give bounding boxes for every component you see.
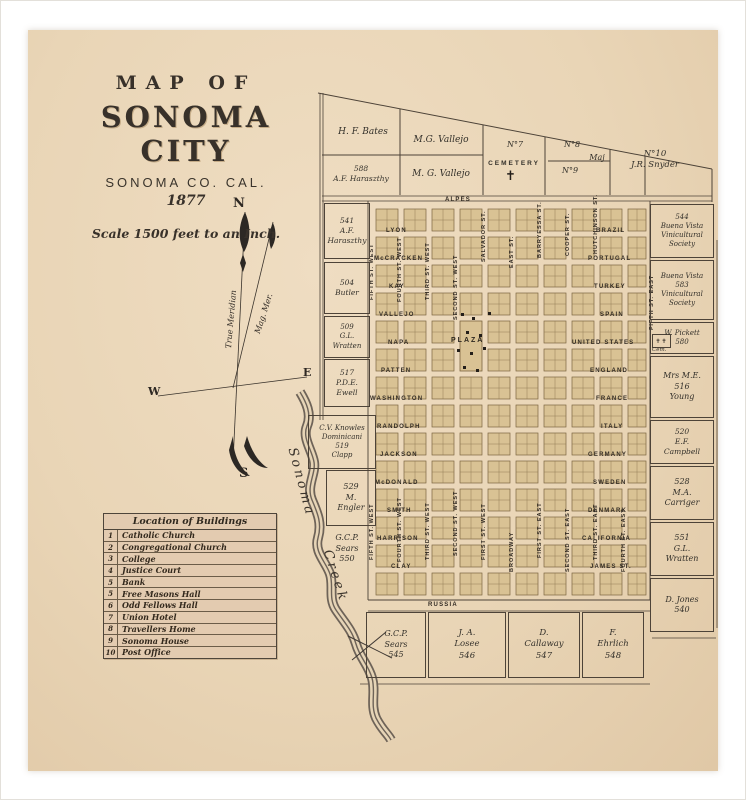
parcel-line: Society bbox=[669, 240, 695, 249]
parcel-line: G.C.P. bbox=[335, 533, 358, 543]
parcel-line: D. Jones bbox=[665, 595, 698, 605]
street-label-h: TURKEY bbox=[594, 284, 626, 290]
parcel-line: M.A. bbox=[672, 488, 691, 498]
parcel-label: N°8 bbox=[552, 138, 592, 152]
parcel-line: 529 bbox=[343, 482, 358, 492]
street-label-v: SECOND ST. WEST bbox=[453, 255, 459, 320]
street-label-v: EAST ST. bbox=[509, 236, 515, 268]
legend-row: 6Odd Fellows Hall bbox=[104, 600, 276, 612]
parcel-line: H. F. Bates bbox=[338, 127, 388, 139]
year: 1877 bbox=[60, 193, 312, 209]
parcel-label: H. F. Bates bbox=[330, 118, 396, 148]
parcel-line: J.R. Snyder bbox=[631, 160, 679, 171]
street-label-v: SECOND ST. EAST bbox=[565, 508, 571, 572]
parcel-line: 528 bbox=[674, 477, 689, 487]
compass-north-label: N bbox=[233, 196, 245, 211]
parcel-label: N°10J.R. Snyder bbox=[612, 144, 698, 176]
legend-row-name: Union Hotel bbox=[118, 612, 177, 622]
parcel-line: 550 bbox=[339, 554, 354, 564]
parcel-line: Wratten bbox=[333, 342, 362, 351]
street-label-h: ITALY bbox=[601, 424, 623, 430]
cemetery-cross-icon: ✝ bbox=[505, 168, 516, 184]
parcel-label: J. A.Losee546 bbox=[428, 612, 506, 678]
parcel-line: N°10 bbox=[644, 149, 667, 160]
parcel-label: M.G. Vallejo bbox=[402, 126, 480, 156]
building-marker bbox=[483, 347, 486, 350]
legend-row-number: 5 bbox=[104, 577, 118, 588]
street-label-v: THIRD ST. WEST bbox=[425, 242, 431, 300]
street-label-h: ENGLAND bbox=[590, 368, 628, 374]
legend-rows: 1Catholic Church2Congregational Church3C… bbox=[104, 530, 276, 658]
parcel-line: 516 bbox=[674, 382, 689, 392]
parcel-label: 528M.A.Carriger bbox=[650, 466, 714, 520]
parcel-line: 588 bbox=[354, 164, 368, 174]
parcel-line: Clapp bbox=[332, 451, 353, 460]
parcel-line: Buena Vista bbox=[661, 272, 703, 281]
parcel-line: P.D.E. bbox=[336, 378, 358, 388]
parcel-line: 546 bbox=[459, 651, 475, 662]
legend-row-name: Free Masons Hall bbox=[118, 589, 201, 599]
building-marker bbox=[457, 349, 460, 352]
parcel-label: 541A.F.Haraszthy bbox=[324, 203, 370, 259]
street-label-h: VALLEJO bbox=[379, 312, 415, 318]
parcel-line: Sears bbox=[336, 544, 359, 554]
parcel-label: N°9 bbox=[550, 164, 590, 178]
parcel-label: 504Butler bbox=[324, 262, 370, 314]
legend-row-name: Catholic Church bbox=[118, 530, 195, 540]
parcel-line: M. G. Vallejo bbox=[412, 169, 470, 181]
parcel-line: Mrs M.E. bbox=[663, 371, 701, 381]
street-label-h: UNITED STATES bbox=[572, 340, 634, 346]
street-label-h: WASHINGTON bbox=[370, 396, 423, 402]
labels-layer: MAP OF SONOMA CITY SONOMA CO. CAL. 1877 … bbox=[0, 0, 746, 800]
parcel-label: G.C.P.Sears545 bbox=[366, 612, 426, 678]
street-label-v: COOPER ST. bbox=[565, 213, 571, 256]
parcel-line: Society bbox=[669, 299, 695, 308]
parcel-label: 517P.D.E.Ewell bbox=[324, 359, 370, 407]
parcel-label: C.V. KnowlesDominicani519Clapp bbox=[308, 415, 376, 469]
parcel-label: D.Callaway547 bbox=[508, 612, 580, 678]
parcel-line: C.V. Knowles bbox=[319, 424, 365, 433]
parcel-line: M.G. Vallejo bbox=[414, 135, 469, 147]
map-of-heading: MAP OF bbox=[60, 72, 312, 94]
legend-row: 2Congregational Church bbox=[104, 542, 276, 554]
parcel-line: Vinicultural bbox=[661, 290, 703, 299]
parcel-line: Ehrlich bbox=[597, 639, 628, 650]
parcel-label: 520E.F.Campbell bbox=[650, 420, 714, 464]
legend-row-number: 5 bbox=[104, 588, 118, 599]
parcel-line: A.F. Haraszthy bbox=[333, 174, 389, 184]
street-label-v: SECOND ST. WEST bbox=[453, 491, 459, 556]
street-label-v: BARRYESSA ST. bbox=[537, 201, 543, 258]
legend-row-name: Bank bbox=[118, 577, 145, 587]
legend-row-name: College bbox=[118, 554, 156, 564]
parcel-line: D. bbox=[539, 628, 548, 639]
building-marker bbox=[461, 313, 464, 316]
building-marker bbox=[476, 369, 479, 372]
street-label-v: THIRD ST. EAST bbox=[593, 504, 599, 560]
parcel-line: E.F. bbox=[675, 437, 689, 447]
county-subtitle: SONOMA CO. CAL. bbox=[60, 175, 312, 190]
legend-title: Location of Buildings bbox=[104, 514, 276, 530]
parcel-line: Vinicultural bbox=[661, 231, 703, 240]
parcel-line: 548 bbox=[605, 651, 621, 662]
parcel-line: Engler bbox=[337, 503, 364, 513]
building-marker bbox=[472, 317, 475, 320]
parcel-line: M. bbox=[346, 493, 357, 503]
parcel-line: Campbell bbox=[664, 447, 700, 457]
street-label-v: FOURTH ST. WEST bbox=[397, 497, 403, 562]
parcel-line: Buena Vista bbox=[661, 222, 703, 231]
legend-row: 10Post Office bbox=[104, 647, 276, 658]
parcel-line: 509 bbox=[340, 323, 353, 332]
parcel-label: M. G. Vallejo bbox=[402, 158, 480, 192]
parcel-line: Wratten bbox=[666, 554, 699, 564]
parcel-label: 588A.F. Haraszthy bbox=[324, 155, 398, 193]
parcel-label: D. Jones540 bbox=[650, 578, 714, 632]
street-label-h: SPAIN bbox=[600, 312, 624, 318]
legend-row: 5Free Masons Hall bbox=[104, 588, 276, 600]
parcel-label: 509G.L.Wratten bbox=[324, 316, 370, 358]
street-label-h: GERMANY bbox=[588, 452, 627, 458]
parcel-line: 580 bbox=[675, 338, 688, 347]
parcel-line: Callaway bbox=[524, 639, 563, 650]
parcel-line: 544 bbox=[675, 213, 688, 222]
legend-row-number: 10 bbox=[104, 647, 118, 658]
parcel-line: Losee bbox=[454, 639, 479, 650]
legend: Location of Buildings 1Catholic Church2C… bbox=[103, 513, 277, 659]
parcel-label: Buena Vista583ViniculturalSociety bbox=[650, 260, 714, 320]
street-label-h: PATTEN bbox=[381, 368, 411, 374]
parcel-line: 520 bbox=[675, 427, 689, 437]
parcel-label: W. Pickett580 bbox=[650, 322, 714, 354]
magnetic-meridian-label: Mag. Mer. bbox=[253, 292, 274, 334]
parcel-line: G.L. bbox=[674, 544, 691, 554]
parcel-line: 517 bbox=[340, 368, 354, 378]
legend-row: 3College bbox=[104, 553, 276, 565]
parcel-line: Butler bbox=[335, 288, 359, 298]
parcel-label: Maj bbox=[585, 152, 609, 164]
parcel-label: G.C.P.Sears550 bbox=[324, 528, 370, 570]
parcel-line: J. A. bbox=[459, 628, 476, 639]
legend-row-number: 1 bbox=[104, 530, 118, 541]
parcel-line: N°9 bbox=[562, 166, 578, 176]
compass-east-label: E bbox=[303, 366, 311, 379]
parcel-line: 547 bbox=[536, 651, 552, 662]
street-label-h: CLAY bbox=[391, 564, 412, 570]
parcel-line: Sears bbox=[385, 640, 408, 650]
legend-row-number: 4 bbox=[104, 565, 118, 576]
building-marker bbox=[488, 312, 491, 315]
parcel-label: 551G.L.Wratten bbox=[650, 522, 714, 576]
legend-row-number: 8 bbox=[104, 624, 118, 635]
building-marker bbox=[463, 366, 466, 369]
street-label-h: RUSSIA bbox=[428, 602, 458, 608]
legend-row-number: 3 bbox=[104, 553, 118, 564]
parcel-line: F. bbox=[609, 628, 616, 639]
parcel-line: G.L. bbox=[340, 332, 354, 341]
legend-row: 4Justice Court bbox=[104, 565, 276, 577]
city-title: SONOMA CITY bbox=[60, 100, 312, 168]
street-label-h: PORTUGAL bbox=[588, 256, 631, 262]
parcel-line: N°7 bbox=[507, 140, 523, 150]
parcel-line: Carriger bbox=[665, 498, 700, 508]
parcel-line: Ewell bbox=[336, 388, 357, 398]
parcel-label: 544Buena VistaViniculturalSociety bbox=[650, 204, 714, 258]
parcel-line: Young bbox=[670, 392, 695, 402]
street-label-v: FOURTH ST. WEST bbox=[397, 237, 403, 302]
compass-south-label: S bbox=[239, 466, 248, 481]
building-marker bbox=[470, 352, 473, 355]
parcel-label: 529M.Engler bbox=[326, 470, 376, 526]
plaza-label: PLAZA bbox=[451, 337, 484, 344]
title-block: MAP OF SONOMA CITY SONOMA CO. CAL. 1877 … bbox=[60, 72, 312, 241]
legend-row-number: 6 bbox=[104, 600, 118, 611]
scale-note: Scale 1500 feet to an Inch. bbox=[60, 226, 312, 241]
street-label-h: FRANCE bbox=[596, 396, 628, 402]
parcel-line: 519 bbox=[335, 442, 348, 451]
legend-row: 5Bank bbox=[104, 577, 276, 589]
parcel-label: N°7 bbox=[495, 138, 535, 152]
parcel-label: CEMETERY bbox=[484, 158, 544, 170]
street-label-v: FOURTH ST. EAST bbox=[621, 508, 627, 572]
street-label-v: FIRST ST. WEST bbox=[481, 503, 487, 560]
legend-row-name: Congregational Church bbox=[118, 542, 227, 552]
parcel-line: G.C.P. bbox=[384, 629, 407, 639]
street-label-h: SWEDEN bbox=[593, 480, 627, 486]
parcel-line: Haraszthy bbox=[328, 236, 367, 246]
street-label-v: HUTCHINSON ST. bbox=[593, 194, 599, 254]
street-label-h: NAPA bbox=[388, 340, 409, 346]
street-label-v: THIRD ST. WEST bbox=[425, 502, 431, 560]
legend-row-name: Travellers Home bbox=[118, 624, 196, 634]
building-marker bbox=[479, 334, 482, 337]
parcel-label: F.Ehrlich548 bbox=[582, 612, 644, 678]
parcel-line: Dominicani bbox=[322, 433, 362, 442]
street-label-h: LYON bbox=[386, 228, 407, 234]
legend-row: 1Catholic Church bbox=[104, 530, 276, 542]
legend-row: 8Travellers Home bbox=[104, 624, 276, 636]
compass-west-label: W bbox=[148, 385, 160, 398]
legend-row-number: 7 bbox=[104, 612, 118, 623]
true-meridian-label: True Meridian bbox=[224, 290, 238, 349]
street-label-h: BRAZIL bbox=[596, 228, 625, 234]
parcel-line: W. Pickett bbox=[664, 329, 699, 338]
street-label-v: FIRST ST. EAST bbox=[537, 502, 543, 558]
legend-row: 9Sonoma House bbox=[104, 635, 276, 647]
parcel-line: 545 bbox=[388, 650, 403, 660]
street-label-v: SALVADOR ST. bbox=[481, 210, 487, 262]
parcel-line: CEMETERY bbox=[488, 160, 540, 168]
legend-row-name: Odd Fellows Hall bbox=[118, 600, 198, 610]
parcel-line: 583 bbox=[675, 281, 688, 290]
parcel-line: 504 bbox=[340, 278, 354, 288]
parcel-line: 540 bbox=[674, 605, 689, 615]
legend-row-name: Justice Court bbox=[118, 565, 181, 575]
building-marker bbox=[466, 331, 469, 334]
parcel-label: Mrs M.E.516Young bbox=[650, 356, 714, 418]
street-label-h: ALPES bbox=[445, 197, 471, 203]
street-label-v: BROADWAY bbox=[509, 532, 515, 572]
street-label-h: RANDOLPH bbox=[377, 424, 421, 430]
legend-row: 7Union Hotel bbox=[104, 612, 276, 624]
parcel-line: 541 bbox=[340, 216, 354, 226]
parcel-line: 551 bbox=[674, 533, 689, 543]
legend-row-number: 2 bbox=[104, 542, 118, 553]
legend-row-name: Sonoma House bbox=[118, 636, 189, 646]
legend-row-number: 9 bbox=[104, 635, 118, 646]
parcel-line: N°8 bbox=[564, 140, 580, 150]
street-label-h: JACKSON bbox=[380, 452, 418, 458]
parcel-line: Maj bbox=[589, 153, 604, 163]
parcel-line: A.F. bbox=[340, 226, 354, 236]
legend-row-name: Post Office bbox=[118, 647, 171, 657]
street-label-h: McDONALD bbox=[375, 480, 419, 486]
